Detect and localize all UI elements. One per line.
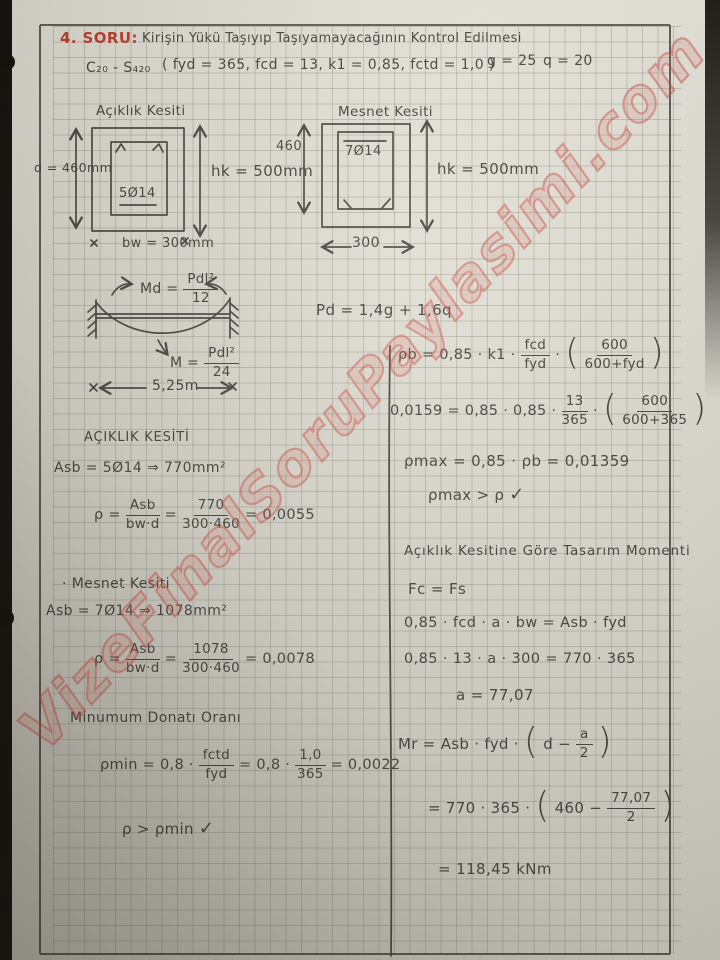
support-section-depth-dim: 460 [276,139,302,154]
span-section-bars: 5Ø14 [119,186,156,201]
close-paren: ) [660,790,674,822]
notebook-photo: { "colors":{"accent_red":"#bd3a2a","ink"… [0,0,720,960]
numerator: Asb [126,642,160,660]
beam-span-length: 5,25m [152,378,199,394]
open-paren: ( [524,726,538,758]
equals-sign: = [165,507,177,523]
numerator: a [576,727,593,745]
formula-text: ρb = 0,85 · k1 · [398,347,516,363]
formula-text: ρmin = 0,8 · [100,757,194,773]
comparison-text: ρ > ρmin [122,820,194,838]
min-ratio-heading: Minumum Donatı Oranı [70,710,241,726]
fraction: 1,0 365 [295,748,325,782]
check-mark-icon: ✓ [199,818,214,839]
denominator: 600+fyd [584,356,644,373]
numerator: 13 [562,394,588,412]
fraction: fcd fyd [521,338,551,372]
support-section-height-dim: hk = 500mm [437,160,539,178]
close-paren: ) [650,337,664,369]
formula-text: Md = [140,281,178,297]
denominator: 2 [627,809,636,826]
numerator: 600 [597,338,632,356]
inner-text: 460 − [555,799,602,817]
span-moment-formula: M = Pdl² 24 [170,346,239,380]
denominator: 12 [192,290,210,307]
materials-label: C₂₀ - S₄₂₀ [86,60,151,76]
denominator: 300·460 [182,516,240,533]
numerator: Pdl² [183,272,218,290]
numerator: Asb [126,498,160,516]
support-moment-formula: Md = Pdl² 12 [140,272,218,306]
fraction: fctd fyd [199,748,234,782]
denominator: fyd [524,356,546,373]
fraction: 77,07 2 [607,791,655,825]
dead-load-value: g = 25 [487,53,537,69]
result-text: = 0,0022 [331,757,401,773]
fraction: 600 600+365 [622,394,687,428]
fraction: 770 300·460 [182,498,240,532]
open-paren: ( [603,393,617,425]
denominator: bw·d [126,660,160,677]
question-number: 4. SORU: [60,29,138,47]
formula-text: Mr = Asb · fyd · [398,735,519,753]
design-parameters: ( fyd = 365, fcd = 13, k1 = 0,85, fctd =… [162,57,495,73]
formula-text: M = [170,355,199,371]
denominator: fyd [205,766,227,783]
support-section-bars: 7Ø14 [345,144,382,159]
numerator: 770 [194,498,229,516]
stress-block-equation: 0,85 · fcd · a · bw = Asb · fyd [404,615,627,631]
stress-block-numeric: 0,85 · 13 · a · 300 = 770 · 365 [404,651,636,667]
inner-text: d − [543,735,571,753]
support-check-heading: · Mesnet Kesiti [62,576,170,592]
balanced-ratio-formula: ρb = 0,85 · k1 · fcd fyd · ( 600 600+fyd… [398,338,664,372]
fraction: 1078 300·460 [182,642,240,676]
span-section-title: Açıklık Kesiti [96,103,186,119]
question-title: Kirişin Yükü Taşıyıp Taşıyamayacağının K… [142,31,522,46]
numerator: fcd [521,338,551,356]
formula-text: ρ = [94,651,121,667]
span-steel-area: Asb = 5Ø14 ⇒ 770mm² [54,460,226,476]
live-load-value: q = 20 [543,53,593,69]
close-paren: ) [598,726,612,758]
moment-capacity-result: = 118,45 kNm [438,860,552,878]
fraction: 13 365 [561,394,588,428]
span-check-heading: AÇIKLIK KESİTİ [84,430,190,445]
denominator: 365 [561,412,588,429]
numerator: 1,0 [295,748,325,766]
open-paren: ( [565,337,579,369]
result-text: = 0,0078 [245,651,315,667]
denominator: bw·d [126,516,160,533]
numerator: Pdl² [204,346,239,364]
design-load-formula: Pd = 1,4g + 1,6q [316,301,452,319]
support-section-width-dim: 300 [352,235,380,251]
times-sign: · [555,347,560,363]
equals-sign: = [165,651,177,667]
support-section-title: Mesnet Kesiti [338,104,433,120]
numerator: 77,07 [607,791,655,809]
balanced-ratio-numeric: 0,0159 = 0,85 · 0,85 · 13 365 · ( 600 60… [390,394,707,428]
fraction: 600 600+fyd [584,338,644,372]
open-paren: ( [535,790,549,822]
fraction: Pdl² 12 [183,272,218,306]
numerator: 1078 [189,642,233,660]
formula-text: = 770 · 365 · [428,799,530,817]
force-equilibrium: Fc = Fs [408,580,466,598]
check-mark-icon: ✓ [509,484,524,505]
denominator: 300·460 [182,660,240,677]
denominator: 2 [580,745,589,762]
close-paren: ) [692,393,706,425]
moment-capacity-formula: Mr = Asb · fyd · ( d − a 2 ) [398,727,612,761]
numerator: 600 [637,394,672,412]
moment-capacity-numeric: = 770 · 365 · ( 460 − 77,07 2 ) [428,791,675,825]
rho-max-result: ρmax = 0,85 · ρb = 0,01359 [404,452,630,470]
span-section-depth-dim: d = 460mm [34,160,112,175]
comparison-text: ρmax > ρ [428,486,504,504]
denominator: 365 [297,766,324,783]
times-sign: · [593,403,598,419]
fraction: Pdl² 24 [204,346,239,380]
min-rho-equation: ρmin = 0,8 · fctd fyd = 0,8 · 1,0 365 = … [100,748,400,782]
span-section-height-dim: hk = 500mm [211,162,313,180]
support-rho-equation: ρ = Asb bw·d = 1078 300·460 = 0,0078 [94,642,315,676]
min-rho-check: ρ > ρmin ✓ [122,818,214,839]
formula-text: 0,0159 = 0,85 · 0,85 · [390,403,556,419]
fraction: a 2 [576,727,593,761]
stress-block-depth-result: a = 77,07 [456,686,534,704]
denominator: 600+365 [622,412,687,429]
numerator: fctd [199,748,234,766]
support-steel-area: Asb = 7Ø14 ⇒ 1078mm² [46,603,227,619]
result-text: = 0,0055 [245,507,315,523]
rho-max-check: ρmax > ρ ✓ [428,484,525,505]
formula-text: ρ = [94,507,121,523]
span-section-width-dim: bw = 300mm [122,236,214,251]
denominator: 24 [213,364,231,381]
fraction: Asb bw·d [126,642,160,676]
mid-text: = 0,8 · [239,757,290,773]
span-rho-equation: ρ = Asb bw·d = 770 300·460 = 0,0055 [94,498,315,532]
fraction: Asb bw·d [126,498,160,532]
design-moment-heading: Açıklık Kesitine Göre Tasarım Momenti [404,543,691,559]
